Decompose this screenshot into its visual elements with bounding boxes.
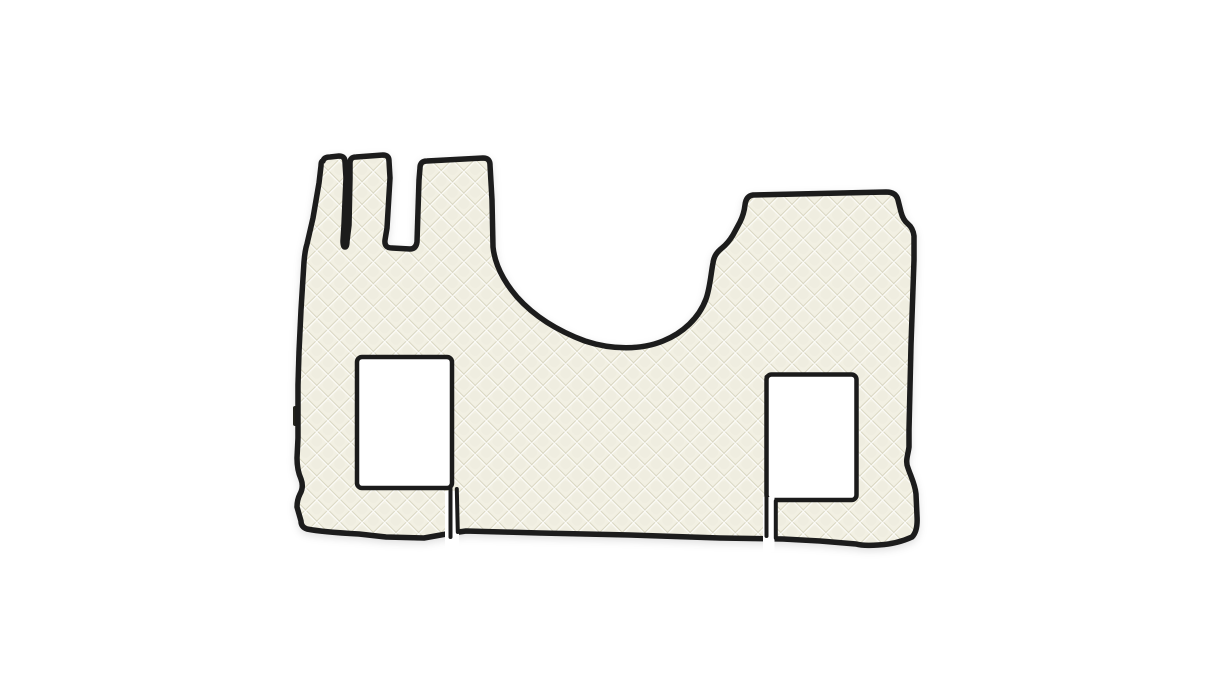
driver-seat-cutout bbox=[357, 357, 452, 488]
passenger-seat-cutout bbox=[767, 375, 857, 501]
product-photo bbox=[0, 0, 1214, 699]
product-photo-stage bbox=[0, 0, 1214, 699]
piece-gap-left bbox=[445, 489, 459, 549]
piece-gap-left-centre-edge bbox=[457, 489, 458, 532]
